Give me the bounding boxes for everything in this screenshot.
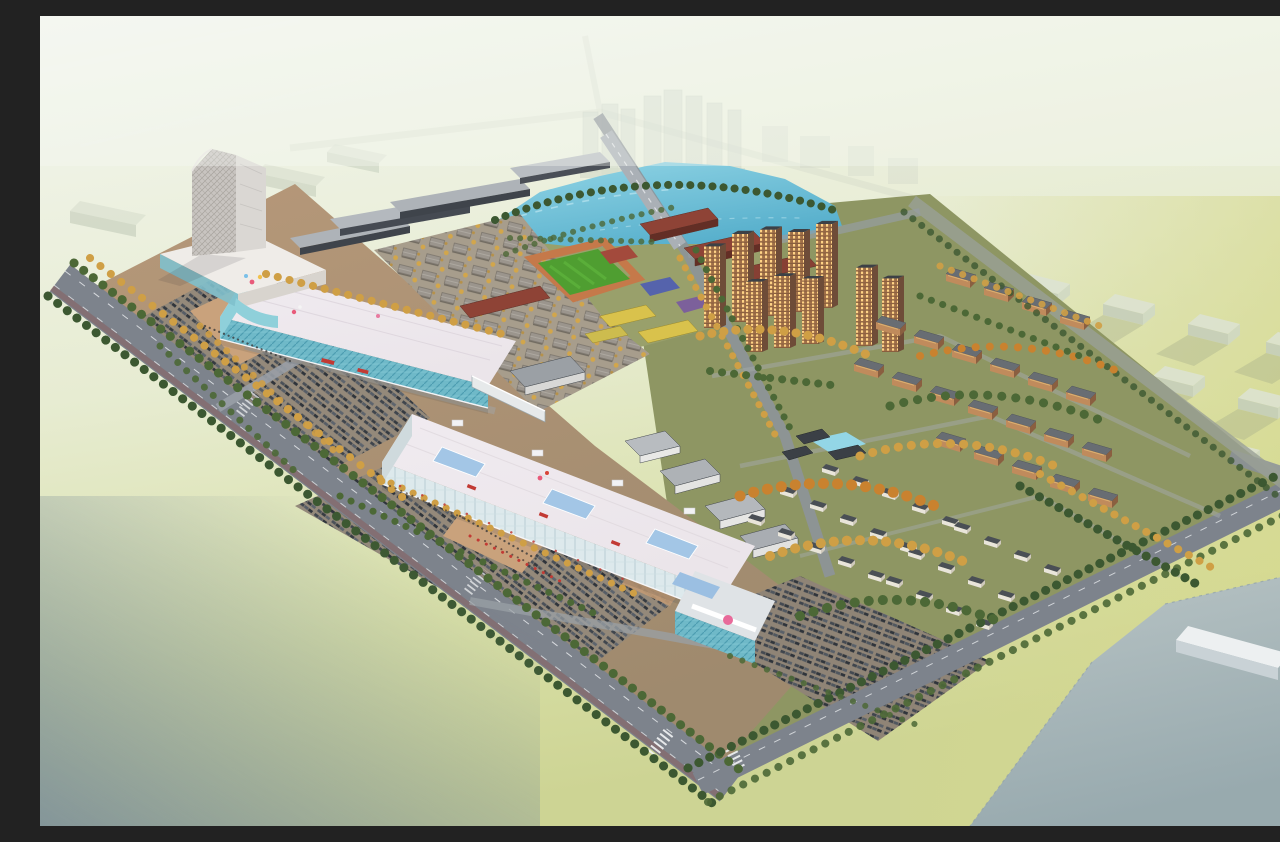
aerial-rendering-canvas: [40, 16, 1280, 826]
corner-haze: [40, 496, 540, 826]
hi-rise-tower: [746, 279, 768, 352]
hi-rise-tower: [774, 273, 796, 348]
hi-rise-tower: [856, 265, 878, 346]
mall-logo: [723, 615, 733, 625]
hi-rise-tower: [882, 276, 904, 352]
aerial-rendering: Aerial dusk rendering of a mixed-use dev…: [40, 16, 1280, 826]
tower-side-face: [236, 155, 266, 252]
top-haze: [40, 16, 1280, 166]
hi-rise-tower: [704, 243, 726, 328]
